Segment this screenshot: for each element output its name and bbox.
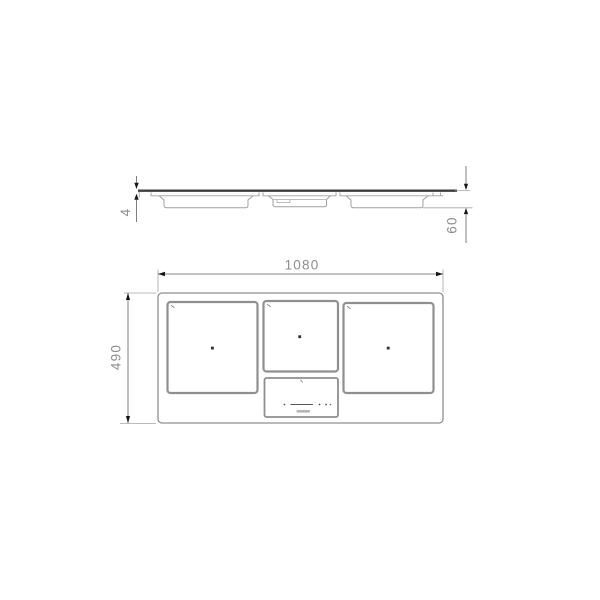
dim-width: 1080 bbox=[158, 258, 443, 293]
center-dot-right-zone bbox=[387, 347, 390, 350]
width-label: 1080 bbox=[285, 258, 320, 273]
control-panel-dot-2 bbox=[319, 404, 321, 406]
center-housing bbox=[263, 192, 336, 207]
built-in-depth-label: 60 bbox=[445, 216, 460, 233]
cooking-zone-left bbox=[168, 302, 258, 393]
top-view-section: 1080 490 bbox=[109, 258, 444, 424]
dim-depth-arrow-down bbox=[126, 416, 130, 423]
right-burner-housing bbox=[340, 192, 443, 208]
glass-thickness-label: 4 bbox=[118, 208, 133, 217]
dim4-arrow-up bbox=[134, 194, 138, 200]
dim-width-arrow-left bbox=[158, 272, 165, 277]
cooking-zone-right bbox=[344, 303, 434, 393]
dim-installed-depth: 60 bbox=[423, 166, 473, 243]
center-dot-center-zone bbox=[298, 335, 301, 338]
dim-glass-thickness: 4 bbox=[118, 176, 139, 222]
dim4-arrow-down bbox=[134, 183, 138, 189]
dim60-arrow-up bbox=[464, 208, 468, 214]
side-view-section: 4 60 bbox=[118, 166, 473, 243]
dim-depth: 490 bbox=[109, 293, 157, 424]
depth-label: 490 bbox=[109, 344, 124, 370]
right-housing-pan bbox=[346, 196, 428, 208]
right-housing-flange bbox=[340, 192, 443, 196]
technical-drawing: 4 60 1080 490 bbox=[0, 0, 600, 600]
left-burner-housing bbox=[151, 192, 259, 208]
dim-depth-arrow-up bbox=[126, 293, 130, 300]
center-dot-left-zone bbox=[211, 347, 214, 350]
control-panel bbox=[265, 378, 339, 417]
center-housing-inner-step bbox=[277, 200, 290, 203]
dim60-arrow-down bbox=[464, 184, 468, 190]
cooking-zone-center bbox=[264, 301, 339, 372]
dim-width-arrow-right bbox=[436, 272, 443, 277]
center-housing-pan bbox=[269, 196, 331, 207]
control-panel-dot-1 bbox=[284, 404, 286, 406]
drawing-canvas: 4 60 1080 490 bbox=[0, 0, 600, 600]
left-housing-pan bbox=[159, 196, 253, 208]
control-panel-dot-3 bbox=[325, 404, 327, 406]
left-housing-flange bbox=[151, 192, 259, 196]
control-panel-logo-mark bbox=[297, 410, 311, 413]
center-housing-flange bbox=[263, 192, 336, 196]
control-panel-dot-4 bbox=[330, 404, 332, 406]
